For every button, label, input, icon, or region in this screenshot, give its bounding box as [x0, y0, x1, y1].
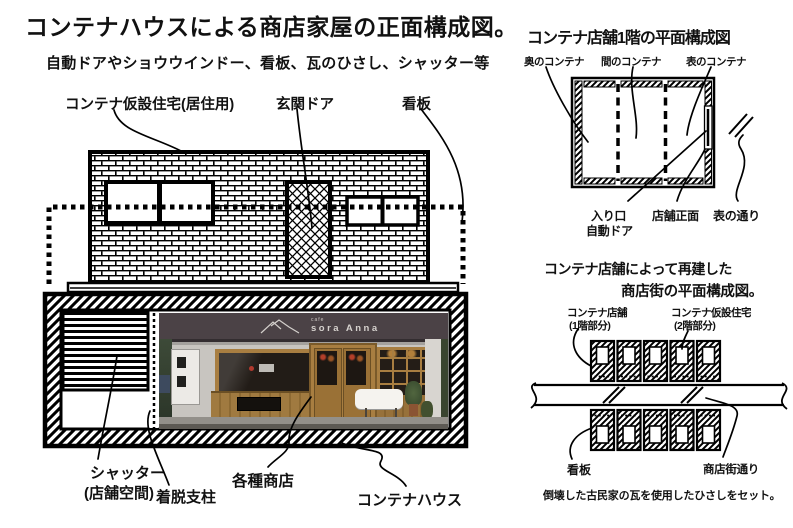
pavement-edge — [159, 424, 448, 429]
door-left — [314, 348, 342, 418]
second-floor-brick-wall — [90, 152, 428, 283]
mountain-logo-icon — [259, 317, 303, 335]
meter-window — [177, 357, 186, 368]
floor-plan-graphic — [572, 78, 714, 187]
label-various-shops: 各種商店 — [232, 469, 294, 491]
label-front-container: 表のコンテナ — [686, 54, 746, 69]
eaves-ledge — [68, 283, 458, 292]
menu-board — [237, 397, 281, 411]
diagram-page: cafe sora Anna コンテナハウスによる商店家 — [0, 0, 793, 528]
label-front-street: 表の通り — [713, 207, 760, 224]
cafe-sign-name: sora Anna — [311, 323, 380, 334]
shutter-graphic — [63, 312, 148, 390]
label-entrance-door: 玄関ドア — [276, 93, 334, 114]
foliage-right — [441, 339, 448, 421]
potted-plant — [405, 381, 422, 405]
label-container-house: コンテナハウス — [357, 489, 462, 510]
label-back-container: 奥のコンテナ — [524, 54, 584, 69]
label-container-housing: コンテナ仮設住宅(居住用) — [65, 93, 234, 114]
page-title: コンテナハウスによる商店家屋の正面構成図。 — [25, 8, 518, 42]
meter-window — [177, 376, 186, 387]
plant-pot — [409, 404, 418, 416]
pavement — [159, 417, 448, 424]
street-plan-title-line1: コンテナ店舗によって再建した — [544, 259, 732, 279]
label-shutter-space: (店舗空間) — [84, 482, 154, 503]
utility-box — [171, 349, 200, 405]
label-container-housing-floor: (2階部分) — [674, 318, 715, 333]
street-plan-graphic — [531, 341, 787, 450]
window-display-item — [259, 364, 274, 372]
window-display-item — [249, 366, 254, 371]
street-plan-title-line2: 商店街の平面構成図。 — [621, 280, 763, 301]
label-shutter: シャッター — [90, 462, 165, 483]
label-signboard: 看板 — [402, 93, 431, 114]
label-shopping-street: 商店街通り — [703, 461, 759, 477]
cafe-awning: cafe sora Anna — [159, 313, 448, 342]
page-subtitle: 自動ドアやショウウインドー、看板、瓦のひさし、シャッター等 — [46, 52, 490, 73]
storefront-photo: cafe sora Anna — [159, 313, 448, 429]
door-glass — [346, 351, 366, 385]
background-left — [159, 375, 170, 393]
street-units-bottom — [591, 410, 720, 450]
label-middle-container: 間のコンテナ — [601, 54, 661, 69]
white-table — [355, 389, 403, 409]
awning-shadow — [159, 342, 448, 345]
label-container-shop-floor: (1階部分) — [569, 318, 610, 333]
door-glass — [317, 351, 337, 385]
label-street-sign: 看板 — [567, 461, 591, 478]
label-removable-post: 着脱支柱 — [156, 486, 216, 507]
street-plan-note: 倒壊した古民家の瓦を使用したひさしをセット。 — [543, 487, 780, 503]
floor-plan-title: コンテナ店舗1階の平面構成図 — [527, 24, 730, 48]
label-auto-door: 自動ドア — [586, 222, 633, 239]
street-units-top — [591, 341, 720, 381]
label-shop-front: 店舗正面 — [652, 207, 699, 224]
